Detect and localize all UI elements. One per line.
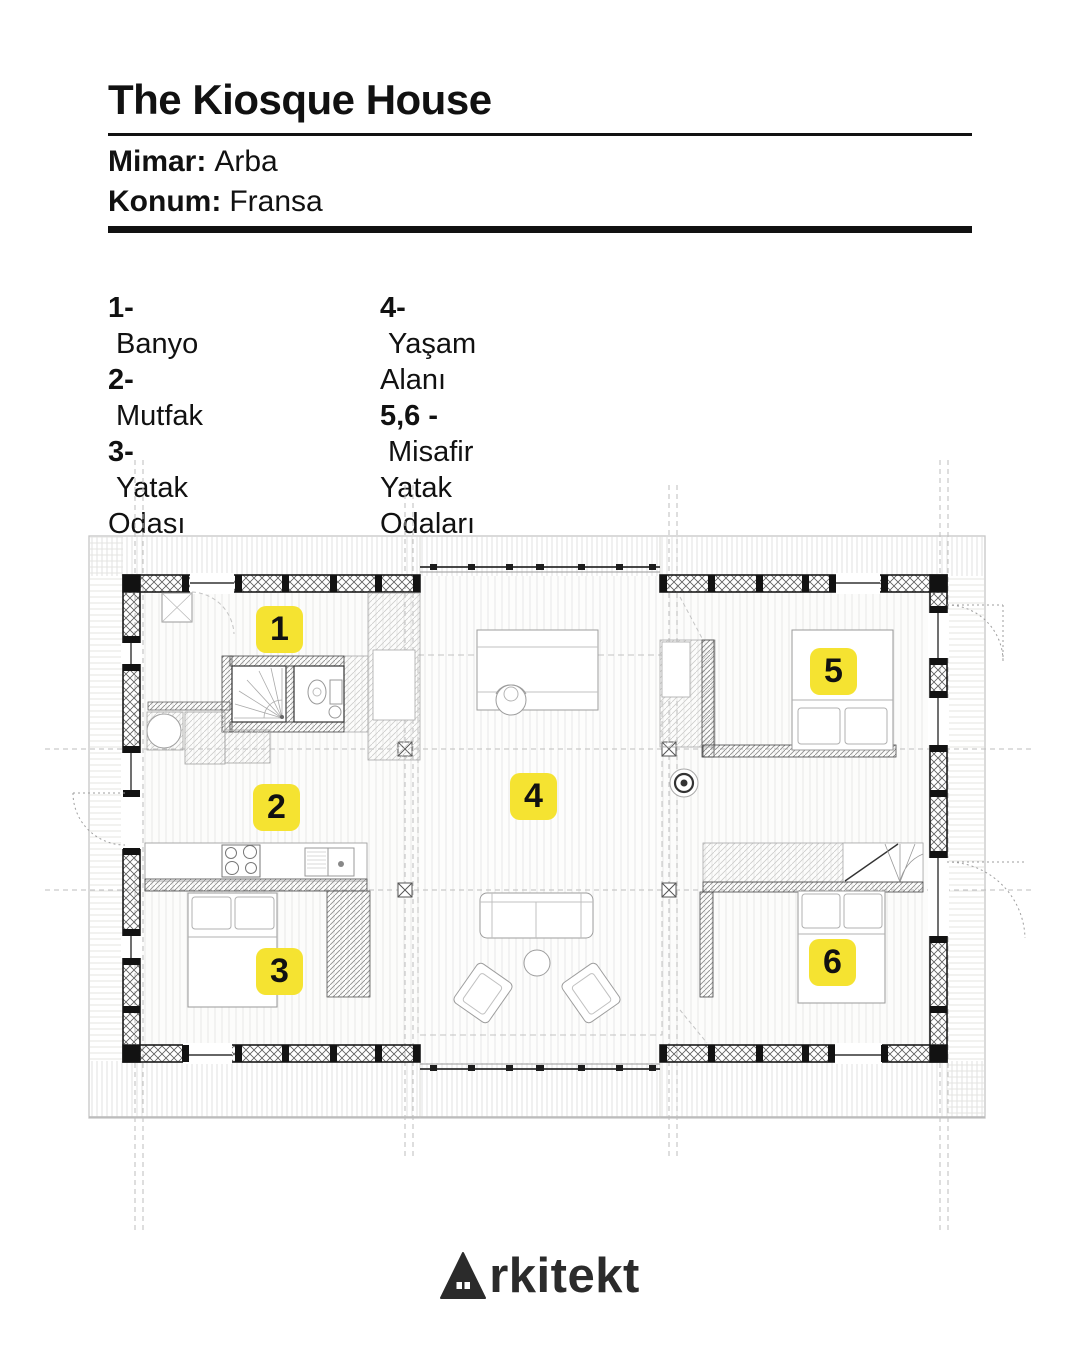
coffee-table xyxy=(524,950,550,976)
logo-house-a-icon xyxy=(440,1252,486,1299)
dining-table xyxy=(477,630,598,710)
location-value: Fransa xyxy=(229,185,322,218)
location-row: Konum:Fransa xyxy=(108,182,323,222)
room-badge-2: 2 xyxy=(253,784,300,831)
architect-value: Arba xyxy=(214,145,277,178)
architect-label: Mimar: xyxy=(108,145,206,178)
divider-thick xyxy=(108,226,972,233)
page: The Kiosque House Mimar:Arba Konum:Frans… xyxy=(0,0,1080,1350)
legend-item-2: 2-Mutfak xyxy=(108,362,203,434)
page-title: The Kiosque House xyxy=(108,76,492,124)
logo-text: rkitekt xyxy=(489,1253,640,1299)
floor-plan xyxy=(30,450,1050,1240)
brand-logo: rkitekt xyxy=(0,1252,1080,1299)
floor-plan-drawing xyxy=(30,450,1050,1240)
wood-stove xyxy=(670,769,698,797)
room-badge-5: 5 xyxy=(810,648,857,695)
room-badge-1: 1 xyxy=(256,606,303,653)
project-meta: Mimar:Arba Konum:Fransa xyxy=(108,142,323,222)
legend-item-4: 4-Yaşam Alanı xyxy=(380,290,476,398)
stairs xyxy=(843,843,923,882)
legend-item-1: 1-Banyo xyxy=(108,290,203,362)
architect-row: Mimar:Arba xyxy=(108,142,323,182)
chair xyxy=(496,685,526,715)
room-badge-4: 4 xyxy=(510,773,557,820)
divider-thin xyxy=(108,133,972,136)
room-badge-3: 3 xyxy=(256,948,303,995)
location-label: Konum: xyxy=(108,185,221,218)
room-badge-6: 6 xyxy=(809,939,856,986)
